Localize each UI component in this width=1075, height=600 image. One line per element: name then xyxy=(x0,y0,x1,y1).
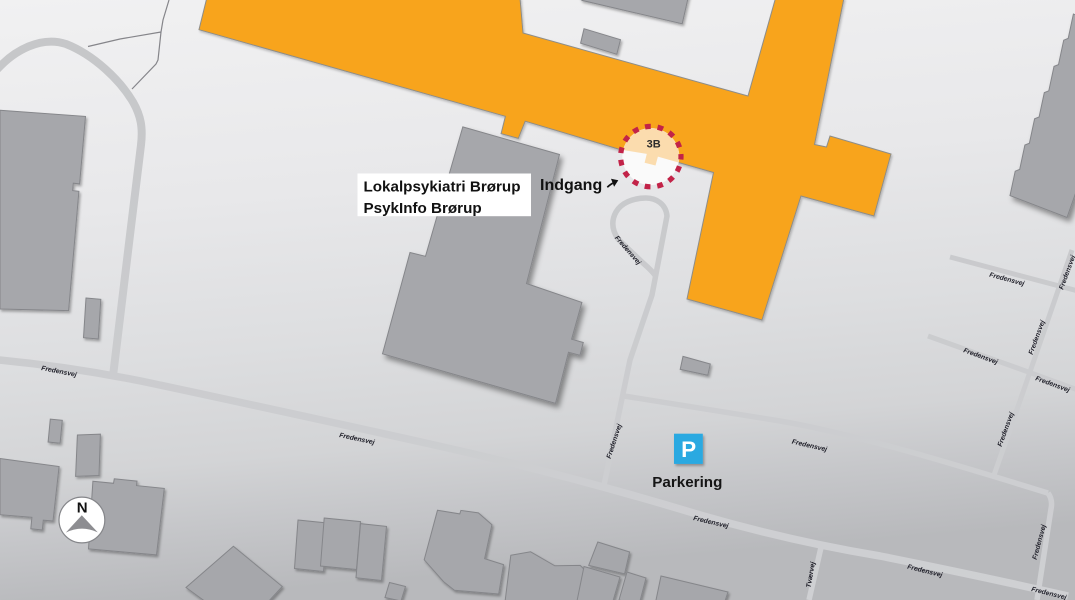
svg-text:P: P xyxy=(681,437,696,462)
svg-text:N: N xyxy=(77,500,88,517)
svg-text:PsykInfo Brørup: PsykInfo Brørup xyxy=(364,200,482,217)
svg-text:3B: 3B xyxy=(647,138,661,150)
svg-text:Parkering: Parkering xyxy=(652,474,722,491)
svg-text:Indgang: Indgang xyxy=(540,177,602,194)
svg-text:Lokalpsykiatri Brørup: Lokalpsykiatri Brørup xyxy=(364,179,521,196)
